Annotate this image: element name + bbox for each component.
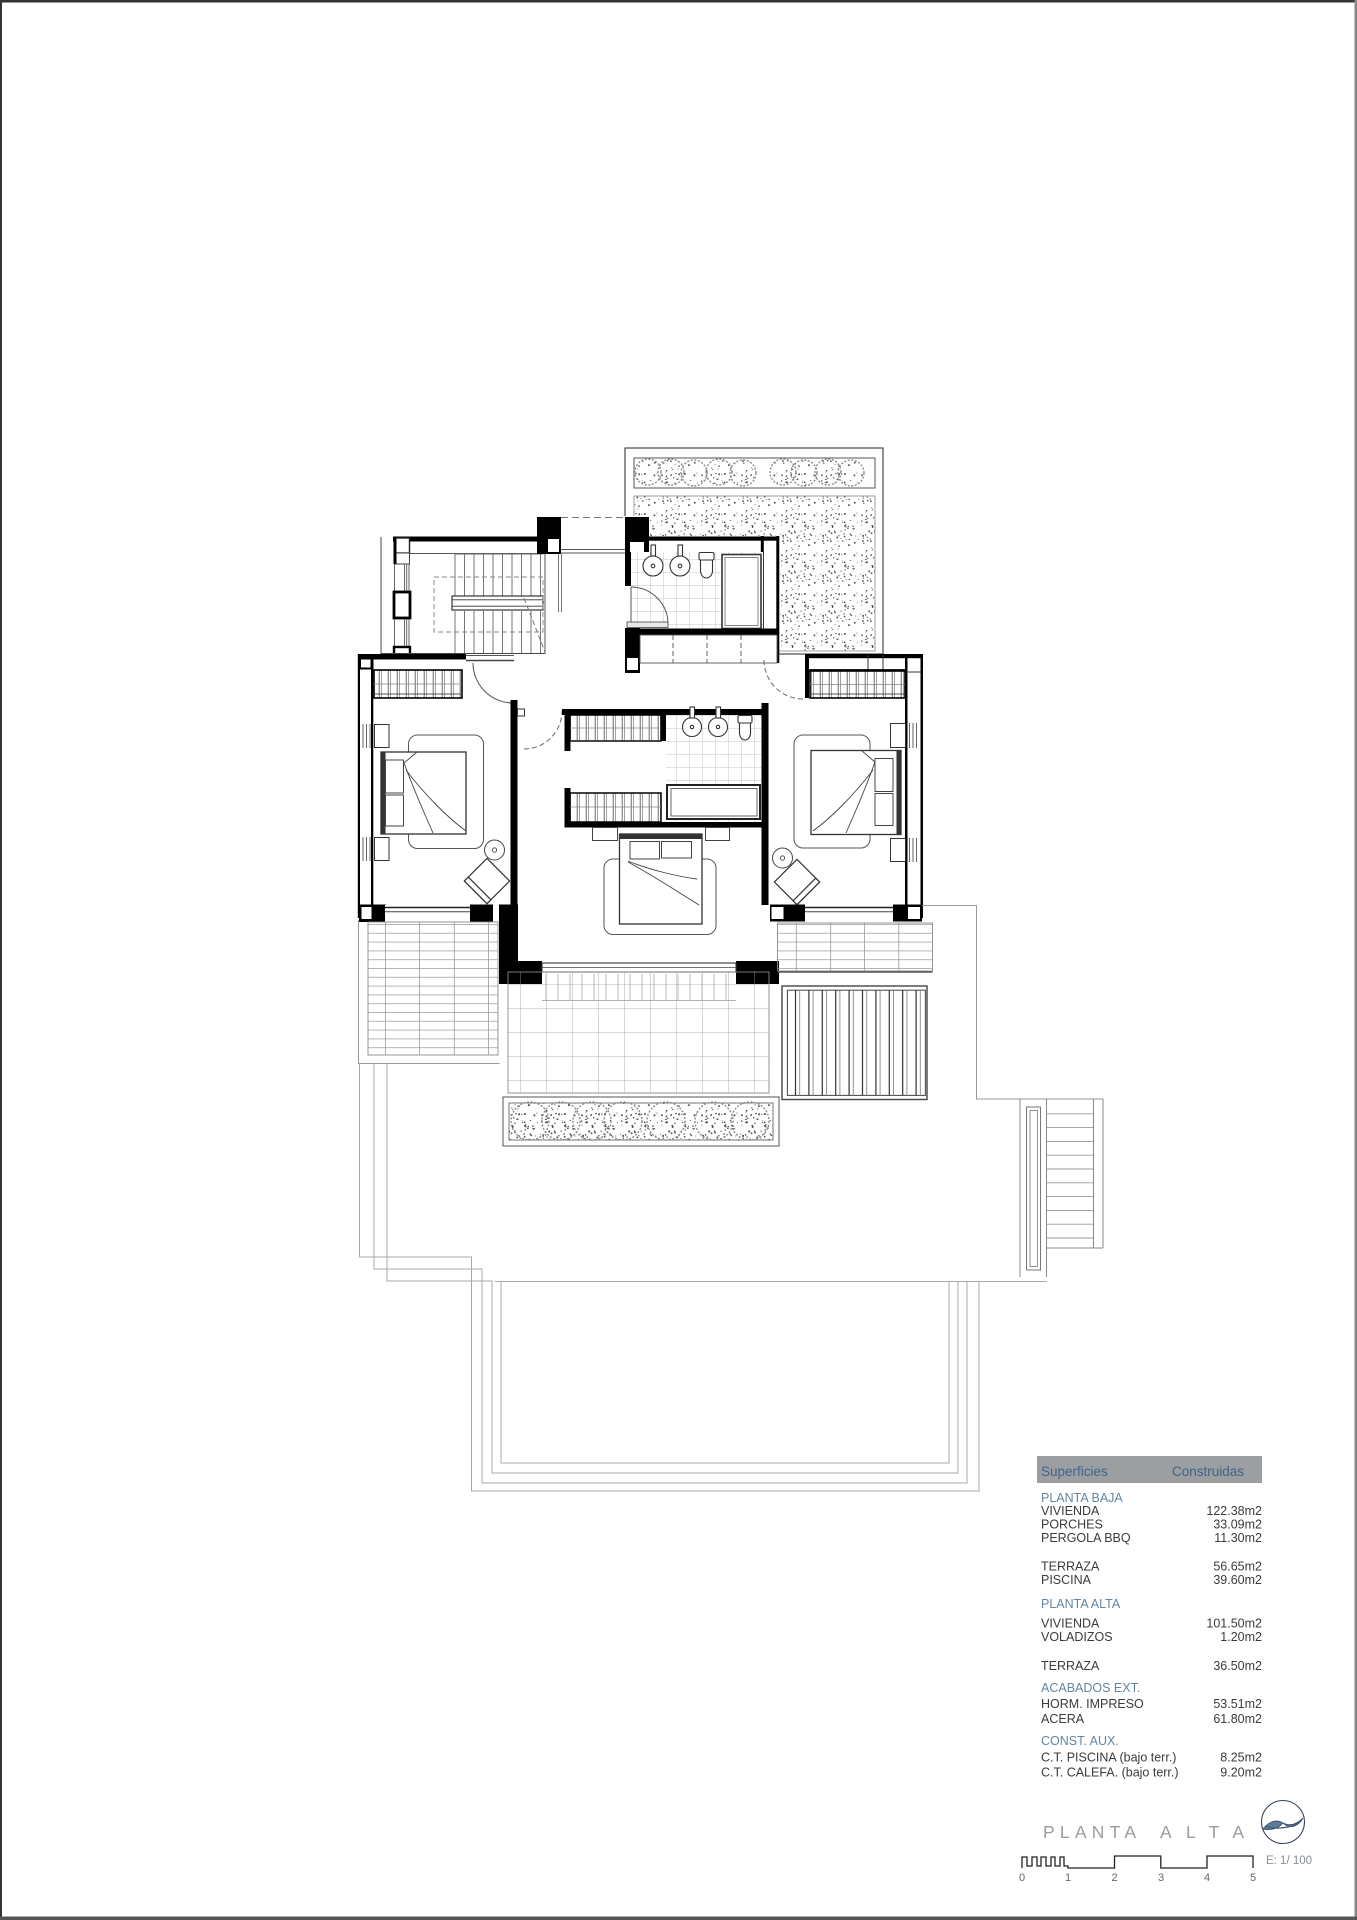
svg-text:4: 4	[1204, 1872, 1210, 1884]
svg-text:TERRAZA: TERRAZA	[1041, 1560, 1100, 1574]
svg-text:2: 2	[1111, 1872, 1117, 1884]
svg-text:3: 3	[1158, 1872, 1164, 1884]
svg-text:9.20m2: 9.20m2	[1220, 1766, 1262, 1780]
svg-text:101.50m2: 101.50m2	[1206, 1617, 1262, 1631]
svg-text:VIVIENDA: VIVIENDA	[1041, 1617, 1100, 1631]
svg-text:PISCINA: PISCINA	[1041, 1573, 1092, 1587]
svg-text:PLANTA BAJA: PLANTA BAJA	[1041, 1491, 1123, 1505]
svg-text:11.30m2: 11.30m2	[1214, 1531, 1262, 1545]
svg-text:36.50m2: 36.50m2	[1213, 1659, 1262, 1673]
svg-text:39.60m2: 39.60m2	[1213, 1573, 1262, 1587]
svg-text:0: 0	[1019, 1872, 1025, 1884]
svg-text:VIVIENDA: VIVIENDA	[1041, 1504, 1100, 1518]
svg-text:Construidas: Construidas	[1172, 1464, 1244, 1479]
svg-text:1.20m2: 1.20m2	[1220, 1630, 1262, 1644]
svg-text:PERGOLA BBQ: PERGOLA BBQ	[1041, 1531, 1131, 1545]
svg-text:33.09m2: 33.09m2	[1213, 1518, 1262, 1532]
svg-text:5: 5	[1250, 1872, 1256, 1884]
svg-text:PORCHES: PORCHES	[1041, 1518, 1103, 1532]
svg-text:122.38m2: 122.38m2	[1206, 1504, 1262, 1518]
svg-text:HORM. IMPRESO: HORM. IMPRESO	[1041, 1697, 1144, 1711]
svg-text:1: 1	[1065, 1872, 1071, 1884]
svg-text:ACERA: ACERA	[1041, 1712, 1085, 1726]
svg-text:E: 1/ 100: E: 1/ 100	[1266, 1855, 1312, 1867]
svg-text:PLANTA: PLANTA	[1043, 1822, 1142, 1842]
svg-text:56.65m2: 56.65m2	[1213, 1560, 1262, 1574]
svg-text:ACABADOS EXT.: ACABADOS EXT.	[1041, 1681, 1140, 1695]
svg-text:C.T. CALEFA. (bajo terr.): C.T. CALEFA. (bajo terr.)	[1041, 1766, 1179, 1780]
svg-text:53.51m2: 53.51m2	[1213, 1697, 1262, 1711]
svg-text:Superficies: Superficies	[1041, 1464, 1108, 1479]
svg-text:61.80m2: 61.80m2	[1213, 1712, 1262, 1726]
svg-text:8.25m2: 8.25m2	[1220, 1751, 1262, 1765]
svg-text:C.T. PISCINA (bajo terr.): C.T. PISCINA (bajo terr.)	[1041, 1751, 1176, 1765]
svg-text:TERRAZA: TERRAZA	[1041, 1659, 1100, 1673]
svg-text:VOLADIZOS: VOLADIZOS	[1041, 1630, 1113, 1644]
svg-text:CONST. AUX.: CONST. AUX.	[1041, 1734, 1119, 1748]
svg-text:PLANTA ALTA: PLANTA ALTA	[1041, 1597, 1121, 1611]
